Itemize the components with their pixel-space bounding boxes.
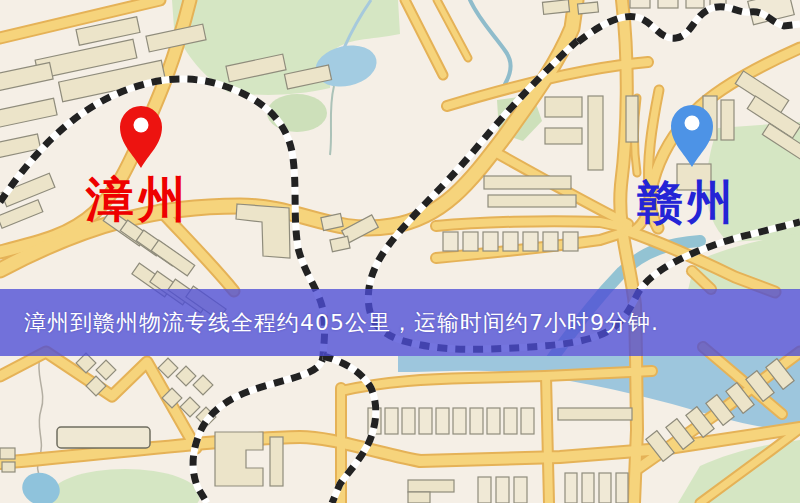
origin-city-label: 漳州: [86, 176, 190, 224]
pin-inner-circle: [134, 118, 149, 133]
destination-city-label: 赣州: [637, 180, 737, 226]
map-image: [0, 0, 800, 503]
route-info-text: 漳州到赣州物流专线全程约405公里，运输时间约7小时9分钟.: [24, 308, 659, 338]
pin-inner-circle: [685, 116, 700, 131]
route-info-banner: 漳州到赣州物流专线全程约405公里，运输时间约7小时9分钟.: [0, 289, 800, 356]
map-canvas[interactable]: 漳州 赣州 漳州到赣州物流专线全程约405公里，运输时间约7小时9分钟.: [0, 0, 800, 503]
